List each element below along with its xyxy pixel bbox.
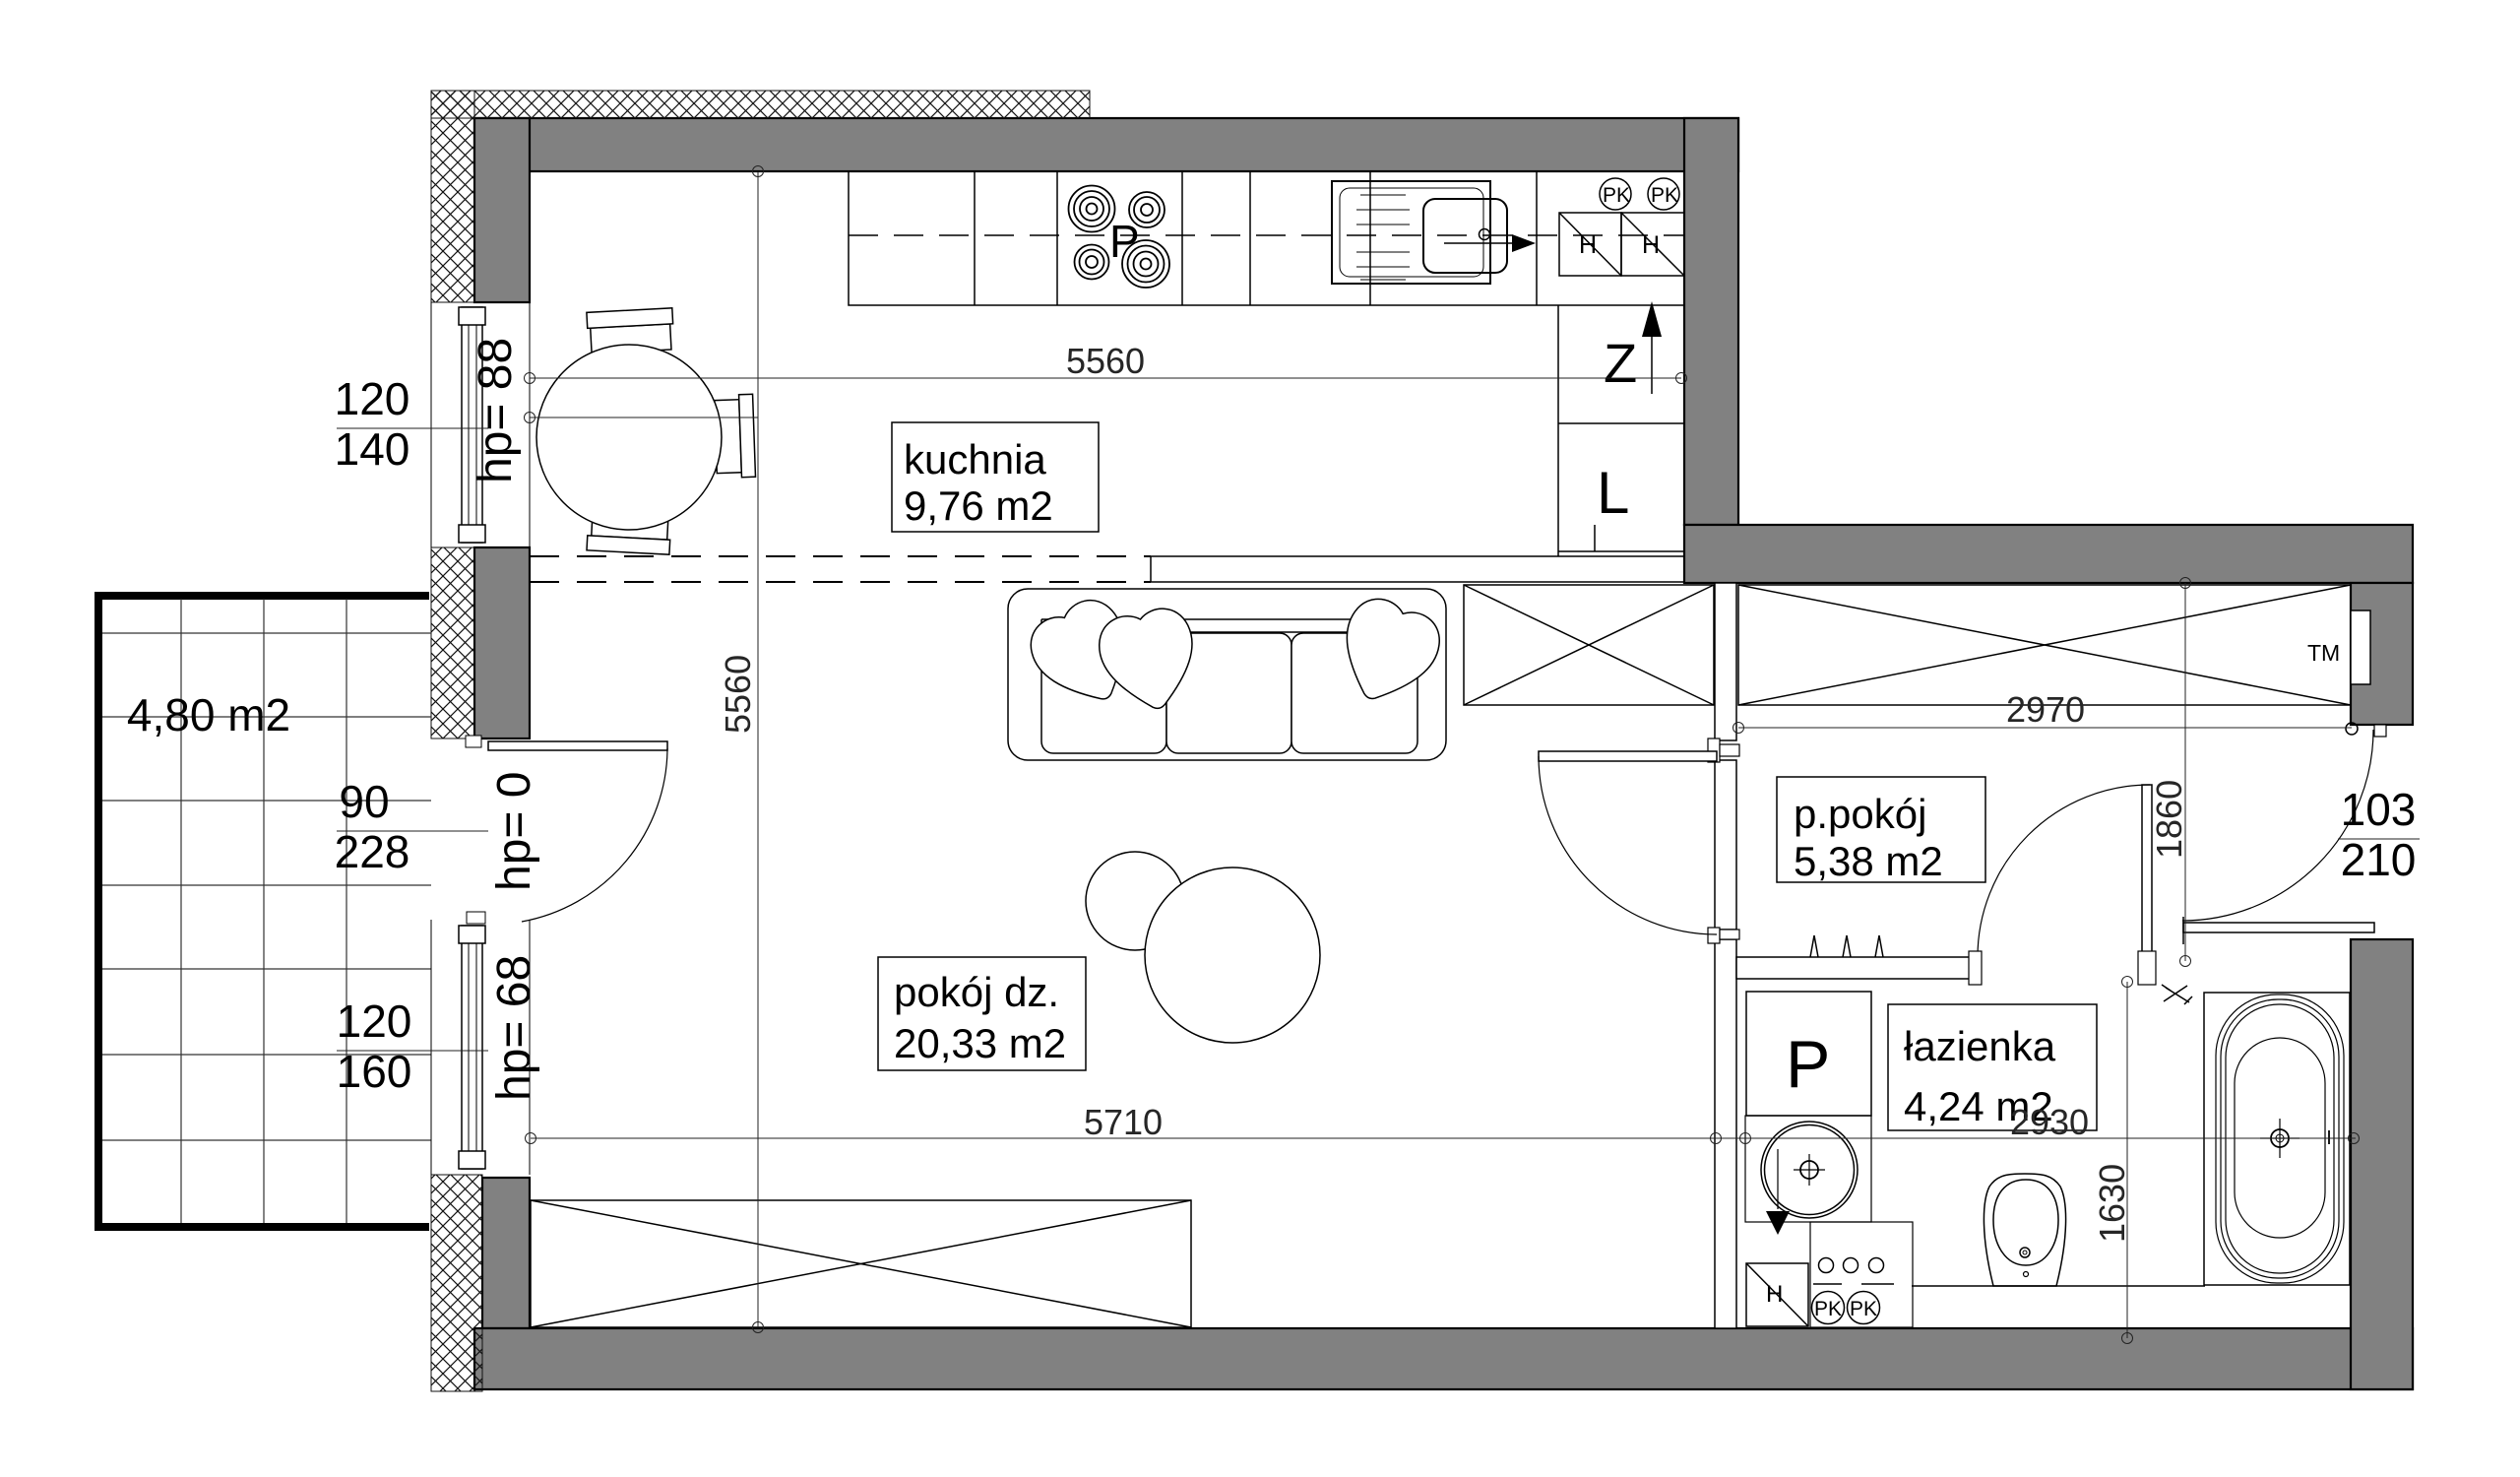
- svg-text:P: P: [1786, 1027, 1830, 1102]
- svg-text:PK: PK: [1814, 1298, 1842, 1320]
- svg-text:hp= 0: hp= 0: [488, 772, 540, 891]
- svg-text:PK: PK: [1651, 184, 1678, 207]
- svg-text:1630: 1630: [2092, 1164, 2132, 1243]
- svg-text:210: 210: [2341, 834, 2417, 885]
- svg-text:kuchnia: kuchnia: [904, 436, 1046, 482]
- svg-text:PK: PK: [1850, 1298, 1877, 1320]
- svg-text:4,80 m2: 4,80 m2: [127, 689, 290, 740]
- svg-text:TM: TM: [2307, 640, 2340, 666]
- svg-text:Z: Z: [1604, 332, 1637, 394]
- svg-text:120: 120: [335, 373, 410, 424]
- svg-text:p.pokój: p.pokój: [1794, 791, 1926, 837]
- svg-text:5560: 5560: [1066, 341, 1145, 381]
- svg-text:P: P: [1109, 216, 1140, 267]
- svg-text:PK: PK: [1603, 184, 1630, 207]
- svg-text:20,33 m2: 20,33 m2: [894, 1020, 1066, 1066]
- svg-text:160: 160: [337, 1046, 412, 1097]
- svg-text:1860: 1860: [2149, 780, 2189, 859]
- svg-text:228: 228: [335, 826, 410, 877]
- svg-text:hp= 68: hp= 68: [488, 955, 540, 1101]
- svg-text:140: 140: [335, 423, 410, 475]
- svg-text:5710: 5710: [1084, 1102, 1163, 1142]
- svg-text:2930: 2930: [2010, 1102, 2089, 1142]
- svg-text:5560: 5560: [718, 655, 758, 734]
- svg-text:103: 103: [2341, 784, 2417, 835]
- svg-text:H: H: [1766, 1281, 1783, 1308]
- svg-text:9,76 m2: 9,76 m2: [904, 482, 1053, 529]
- svg-text:H: H: [1579, 231, 1597, 259]
- svg-text:łazienka: łazienka: [1904, 1023, 2056, 1069]
- svg-text:90: 90: [339, 776, 389, 827]
- svg-text:2970: 2970: [2006, 689, 2085, 730]
- svg-text:120: 120: [337, 995, 412, 1047]
- svg-text:pokój dz.: pokój dz.: [894, 969, 1059, 1015]
- svg-text:5,38 m2: 5,38 m2: [1794, 838, 1943, 884]
- svg-text:L: L: [1597, 460, 1629, 526]
- svg-text:hp= 88: hp= 88: [470, 338, 522, 483]
- svg-text:H: H: [1642, 231, 1660, 259]
